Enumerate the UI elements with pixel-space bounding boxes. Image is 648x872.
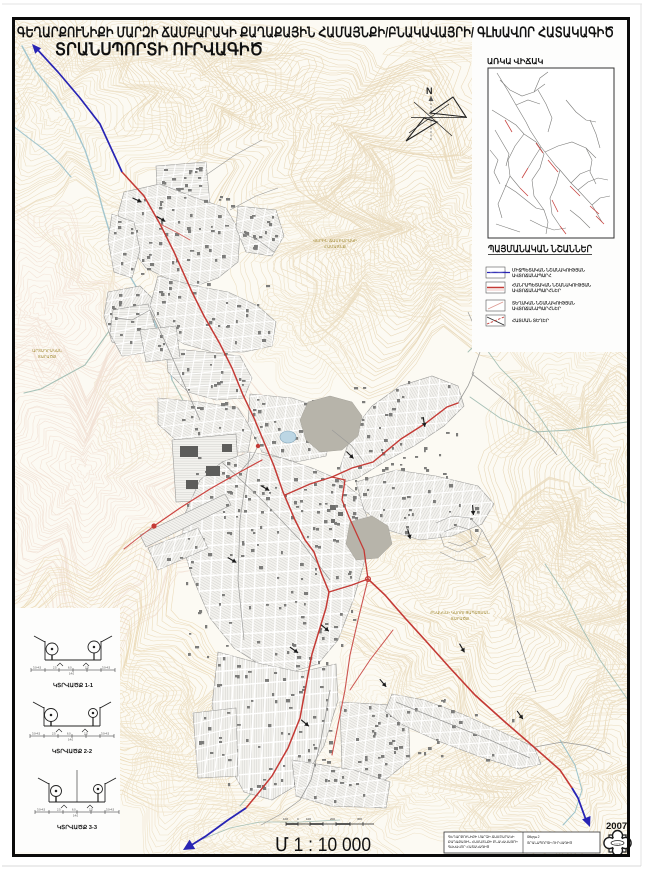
svg-text:N: N: [426, 86, 433, 96]
svg-text:3.0-4.5: 3.0-4.5: [33, 666, 42, 670]
svg-text:ԿՏՐՎԱԾՔ 3-3: ԿՏՐՎԱԾՔ 3-3: [57, 824, 97, 831]
svg-text:ԱՎՏՈՃԱՆԱՊԱՐՀ: ԱՎՏՈՃԱՆԱՊԱՐՀ: [512, 273, 551, 278]
svg-text:ԳԼԽԱՎՈՐ ՀԱՏԱԿԱԳԻԾ: ԳԼԽԱՎՈՐ ՀԱՏԱԿԱԳԻԾ: [448, 845, 489, 849]
svg-text:ՀԱՄԱՅՆՔ: ՀԱՄԱՅՆՔ: [324, 244, 346, 249]
svg-text:Թերթ 2: Թերթ 2: [527, 835, 540, 839]
svg-text:6.0: 6.0: [72, 808, 76, 812]
svg-text:ՏՐԱՆՍՊՈՐՏԻ ՈՒՐՎԱԳԻԾ: ՏՐԱՆՍՊՈՐՏԻ ՈՒՐՎԱԳԻԾ: [55, 40, 263, 59]
svg-text:ՀԱՆՐԱՊԵՏԱԿԱՆ ՆՇԱՆԱԿՈՒԹՅԱՆ: ՀԱՆՐԱՊԵՏԱԿԱՆ ՆՇԱՆԱԿՈՒԹՅԱՆ: [512, 283, 591, 288]
svg-text:ԿՆԻՔ: ԿՆԻՔ: [614, 842, 621, 845]
svg-text:ՏԵՂԱԿԱՆ ՆՇԱՆԱԿՈՒԹՅԱՆ: ՏԵՂԱԿԱՆ ՆՇԱՆԱԿՈՒԹՅԱՆ: [512, 301, 575, 306]
svg-text:14.0: 14.0: [68, 738, 74, 742]
svg-text:ԱՌԿԱ ՎԻՃԱԿ: ԱՌԿԱ ՎԻՃԱԿ: [487, 57, 543, 66]
svg-text:ՄԻՋՊԵՏԱԿԱՆ ՆՇԱՆԱԿՈՒԹՅԱՆ: ՄԻՋՊԵՏԱԿԱՆ ՆՇԱՆԱԿՈՒԹՅԱՆ: [512, 268, 585, 273]
svg-text:200: 200: [330, 817, 335, 821]
svg-text:Մ 1 : 10 000: Մ 1 : 10 000: [275, 835, 371, 856]
svg-text:ՀԱՏՄԱՆ ՏԵՂԵՐ: ՀԱՏՄԱՆ ՏԵՂԵՐ: [512, 318, 549, 323]
svg-text:ՏԱՐԱԾՔ: ՏԱՐԱԾՔ: [38, 354, 56, 359]
svg-text:3.0-4.5: 3.0-4.5: [101, 732, 110, 736]
svg-text:14.0: 14.0: [73, 814, 79, 818]
svg-text:3.0-4.5: 3.0-4.5: [106, 808, 115, 812]
svg-text:14.0: 14.0: [69, 672, 75, 676]
svg-text:ԿՏՐՎԱԾՔ 2-2: ԿՏՐՎԱԾՔ 2-2: [52, 748, 92, 755]
svg-text:3.0-4.5: 3.0-4.5: [37, 808, 46, 812]
svg-text:ՏՐԱՆՍՊՈՐՏԻ ՈՒՐՎԱԳԻԾ: ՏՐԱՆՍՊՈՐՏԻ ՈՒՐՎԱԳԻԾ: [527, 841, 572, 845]
svg-text:3.0-4.5: 3.0-4.5: [102, 666, 111, 670]
svg-text:2.5: 2.5: [85, 666, 89, 670]
svg-text:ՎԵՐԻՆ ՃԱՄԲԱՐԱԿԻ: ՎԵՐԻՆ ՃԱՄԲԱՐԱԿԻ: [313, 238, 357, 243]
svg-text:ՊԱՅՄԱՆԱԿԱՆ ՆՇԱՆՆԵՐ: ՊԱՅՄԱՆԱԿԱՆ ՆՇԱՆՆԵՐ: [488, 244, 592, 255]
svg-text:6.0: 6.0: [68, 666, 72, 670]
svg-text:2.5: 2.5: [53, 666, 57, 670]
svg-text:100: 100: [306, 817, 311, 821]
svg-text:3.0-4.5: 3.0-4.5: [32, 732, 41, 736]
svg-text:ԱՎՏՈՃԱՆԱՊԱՐՀՆԵՐ: ԱՎՏՈՃԱՆԱՊԱՐՀՆԵՐ: [512, 288, 561, 293]
svg-text:ԱՎՏՈՃԱՆԱՊԱՐՀՆԵՐ: ԱՎՏՈՃԱՆԱՊԱՐՀՆԵՐ: [512, 306, 561, 311]
svg-text:2.5: 2.5: [52, 732, 56, 736]
svg-text:ԳԵՂԱՐՔՈՒՆԻՔԻ ՄԱՐԶԻ ՃԱՄԲԱՐԱԿԻ Ք: ԳԵՂԱՐՔՈՒՆԻՔԻ ՄԱՐԶԻ ՃԱՄԲԱՐԱԿԻ ՔԱՂԱՔԱՅԻՆ Հ…: [17, 24, 614, 40]
svg-text:2.5: 2.5: [84, 732, 88, 736]
svg-text:ԲՆԱԿԵԼԻ ԿԱՌՈՒՑԱՊԱՏՄԱՆ: ԲՆԱԿԵԼԻ ԿԱՌՈՒՑԱՊԱՏՄԱՆ: [430, 610, 489, 615]
svg-text:ԱՐՏԱԴՐԱԿԱՆ: ԱՐՏԱԴՐԱԿԱՆ: [32, 348, 62, 353]
svg-text:300: 300: [357, 817, 362, 821]
svg-text:ՏԱՐԱԾՔ: ՏԱՐԱԾՔ: [451, 616, 469, 621]
svg-text:6.0: 6.0: [67, 732, 71, 736]
svg-text:ԳԵՂԱՐՔՈՒՆԻՔԻ ՄԱՐԶԻ ՃԱՄԲԱՐԱԿԻ: ԳԵՂԱՐՔՈՒՆԻՔԻ ՄԱՐԶԻ ՃԱՄԲԱՐԱԿԻ: [448, 835, 514, 839]
svg-text:ՔԱՂԱՔԱՅԻՆ ՀԱՄԱՅՆՔԻ ԲՆԱԿԱՎԱՅՐԻ: ՔԱՂԱՔԱՅԻՆ ՀԱՄԱՅՆՔԻ ԲՆԱԿԱՎԱՅՐԻ: [448, 840, 518, 844]
svg-text:100: 100: [283, 817, 288, 821]
svg-text:2.5: 2.5: [89, 808, 93, 812]
svg-text:2.5: 2.5: [57, 808, 61, 812]
svg-text:ԿՏՐՎԱԾՔ 1-1: ԿՏՐՎԱԾՔ 1-1: [53, 682, 93, 689]
